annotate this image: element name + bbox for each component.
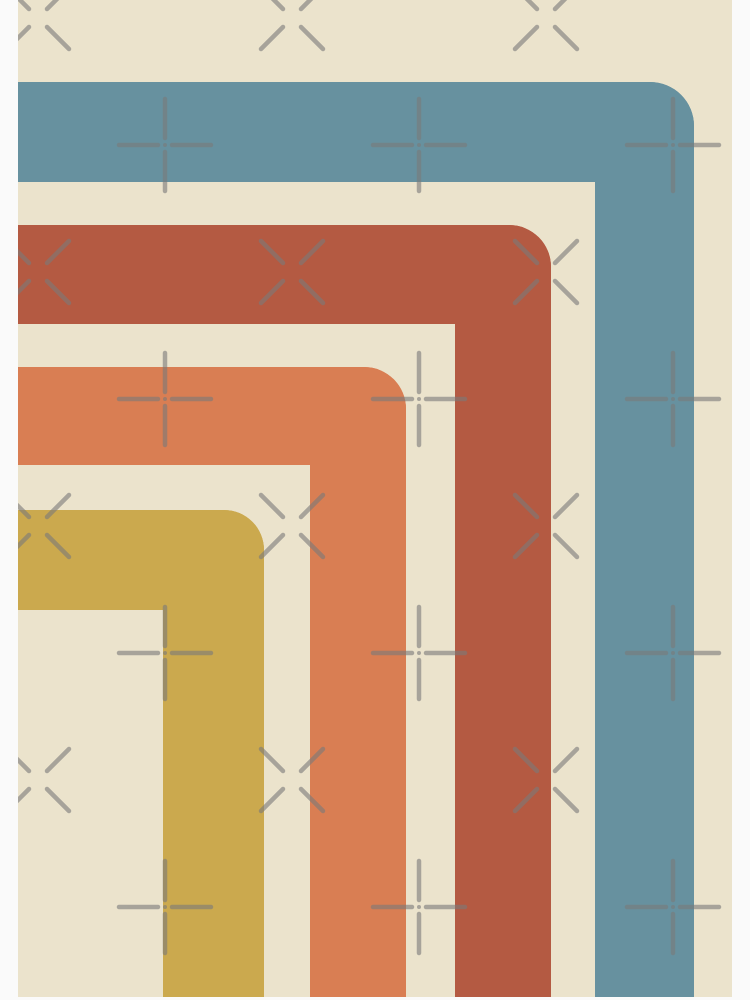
artwork-canvas — [18, 0, 732, 997]
watermark-x-mark — [261, 0, 323, 49]
watermark-x-mark — [18, 0, 69, 49]
mustard-stripe — [18, 510, 264, 997]
watermark-x-mark — [515, 0, 577, 49]
page-margin: { "artwork": { "description": "Retro 70s… — [0, 0, 750, 1000]
